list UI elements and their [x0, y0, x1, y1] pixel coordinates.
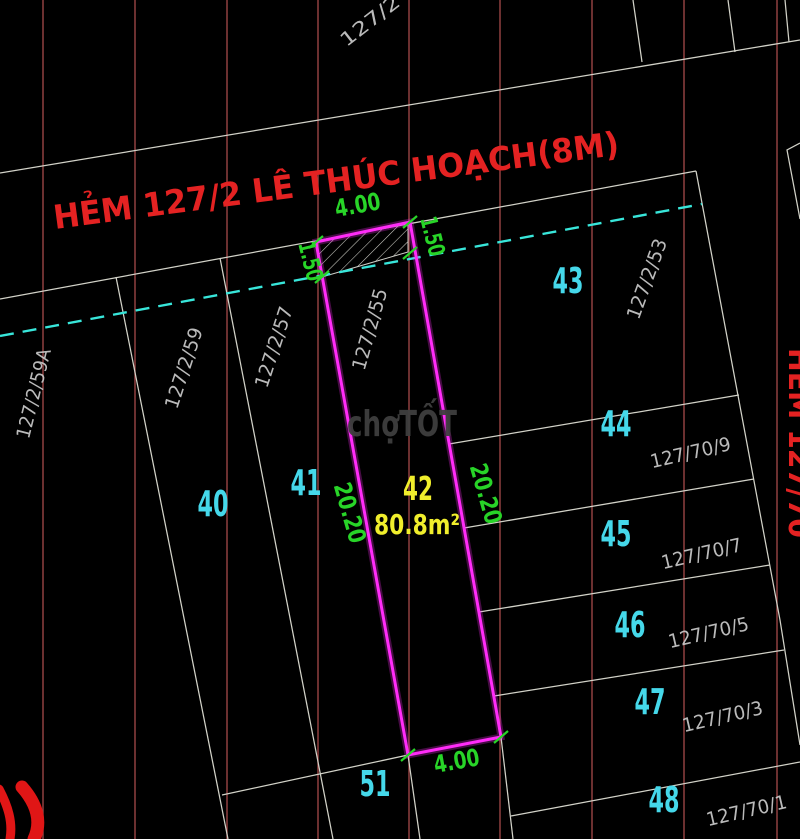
alley-name-label: HẺM 127/70	[781, 348, 800, 538]
parcel-number-44: 44	[601, 404, 632, 445]
parcel-number-48: 48	[649, 780, 680, 821]
plot-42-area: 80.8m²	[374, 508, 460, 541]
watermark-part2: TỐT	[399, 398, 457, 445]
parcel-number-51: 51	[360, 764, 391, 805]
parcel-number-40: 40	[198, 484, 229, 525]
parcel-number-47: 47	[635, 682, 666, 723]
map-canvas: HẺM 127/2 LÊ THÚC HOẠCH(8M) HẺM 127/70 1…	[0, 0, 800, 839]
watermark-part1: chợ	[347, 404, 400, 445]
parcel-number-41: 41	[291, 463, 322, 504]
parcel-number-43: 43	[553, 261, 584, 302]
cadastral-map: HẺM 127/2 LÊ THÚC HOẠCH(8M) HẺM 127/70 1…	[0, 0, 800, 839]
plot-42-number: 42	[403, 469, 433, 508]
parcel-number-46: 46	[615, 605, 646, 646]
chotot-watermark: chợTỐT	[347, 398, 457, 445]
parcel-number-45: 45	[601, 514, 632, 555]
